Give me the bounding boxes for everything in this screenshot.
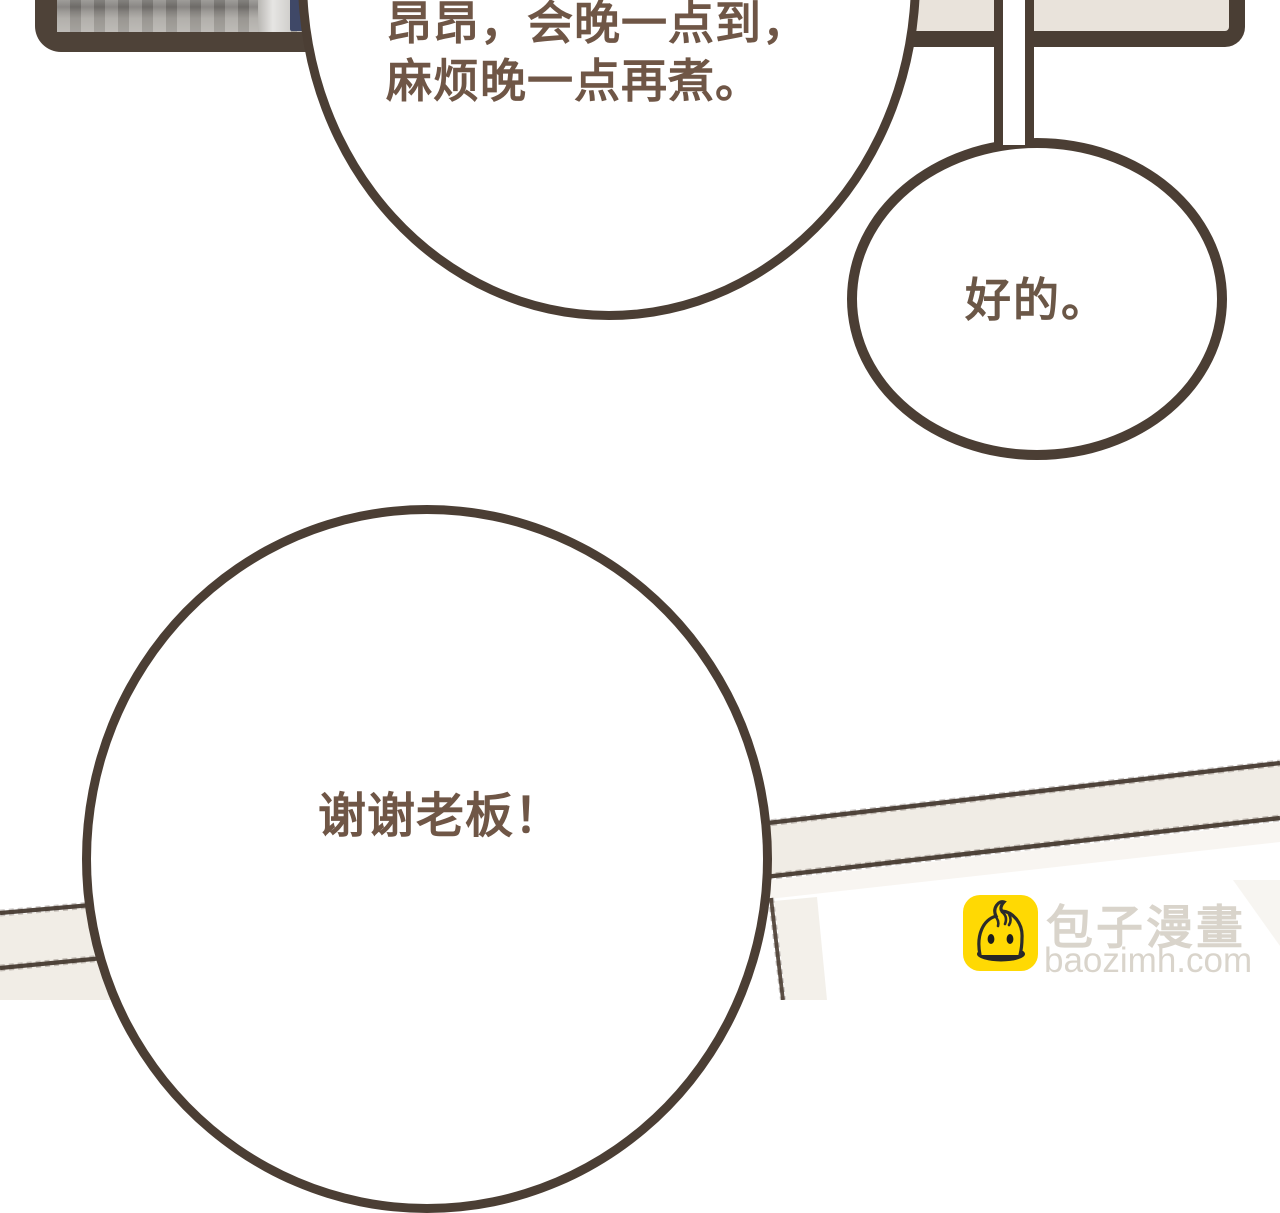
speech-text-main-line2: 麻烦晚一点再煮。	[386, 52, 809, 110]
speech-text-thanks: 谢谢老板！	[318, 776, 563, 846]
baozi-bun-icon	[963, 893, 1039, 975]
comic-page: { "page": {"kind": "webtoon-comic-panel"…	[0, 0, 1280, 1000]
speech-text-main: 昂昂，会晚一点到， 麻烦晚一点再煮。	[386, 0, 809, 110]
watermark-brand-url: baozimh.com	[1044, 941, 1252, 981]
speech-text-reply: 好的。	[965, 264, 1109, 330]
speech-text-main-line1: 昂昂，会晚一点到，	[386, 0, 809, 52]
speech-bubble-thanks	[82, 505, 772, 1213]
speech-bubble-reply-tail	[994, 0, 1034, 145]
